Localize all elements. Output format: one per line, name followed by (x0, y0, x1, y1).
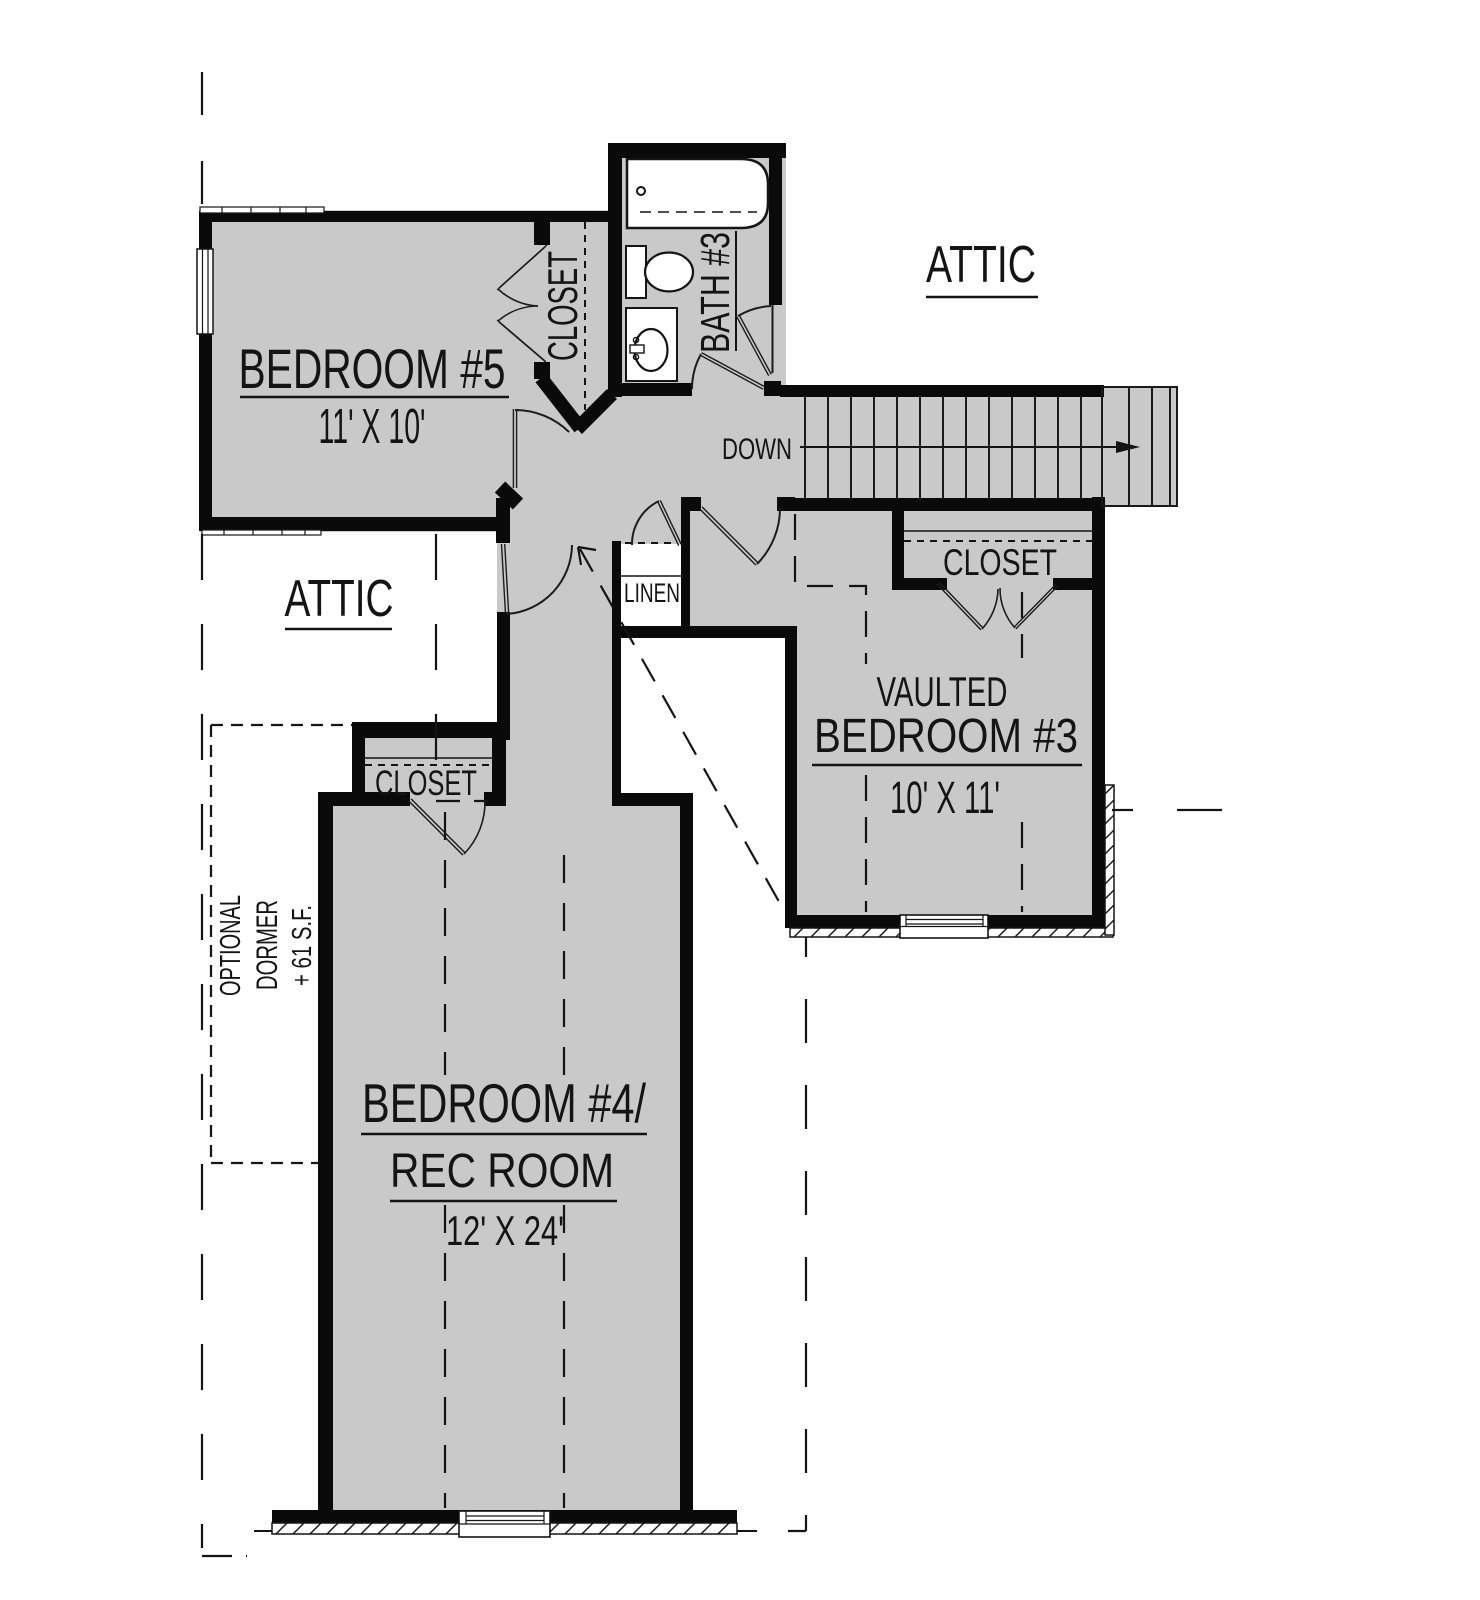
svg-text:CLOSET: CLOSET (943, 542, 1057, 583)
svg-text:BATH #3: BATH #3 (692, 232, 738, 353)
svg-text:LINEN: LINEN (624, 578, 680, 608)
svg-text:BEDROOM #3: BEDROOM #3 (814, 710, 1078, 763)
svg-text:ATTIC: ATTIC (926, 236, 1036, 294)
svg-text:DORMER: DORMER (251, 900, 284, 990)
svg-text:CLOSET: CLOSET (539, 251, 586, 361)
svg-text:OPTIONAL: OPTIONAL (215, 895, 247, 996)
svg-text:VAULTED: VAULTED (877, 668, 1008, 715)
svg-text:BEDROOM #4/: BEDROOM #4/ (362, 1072, 647, 1134)
svg-text:BEDROOM #5: BEDROOM #5 (239, 337, 506, 400)
svg-text:11' X 10': 11' X 10' (319, 400, 426, 454)
svg-text:CLOSET: CLOSET (375, 764, 477, 803)
svg-text:+ 61 S.F.: + 61 S.F. (286, 905, 317, 986)
svg-text:ATTIC: ATTIC (285, 570, 394, 628)
svg-text:REC ROOM: REC ROOM (390, 1145, 614, 1198)
svg-text:10' X 11': 10' X 11' (890, 772, 1000, 823)
svg-text:12' X 24': 12' X 24' (446, 1207, 564, 1254)
svg-text:DOWN: DOWN (722, 433, 792, 466)
